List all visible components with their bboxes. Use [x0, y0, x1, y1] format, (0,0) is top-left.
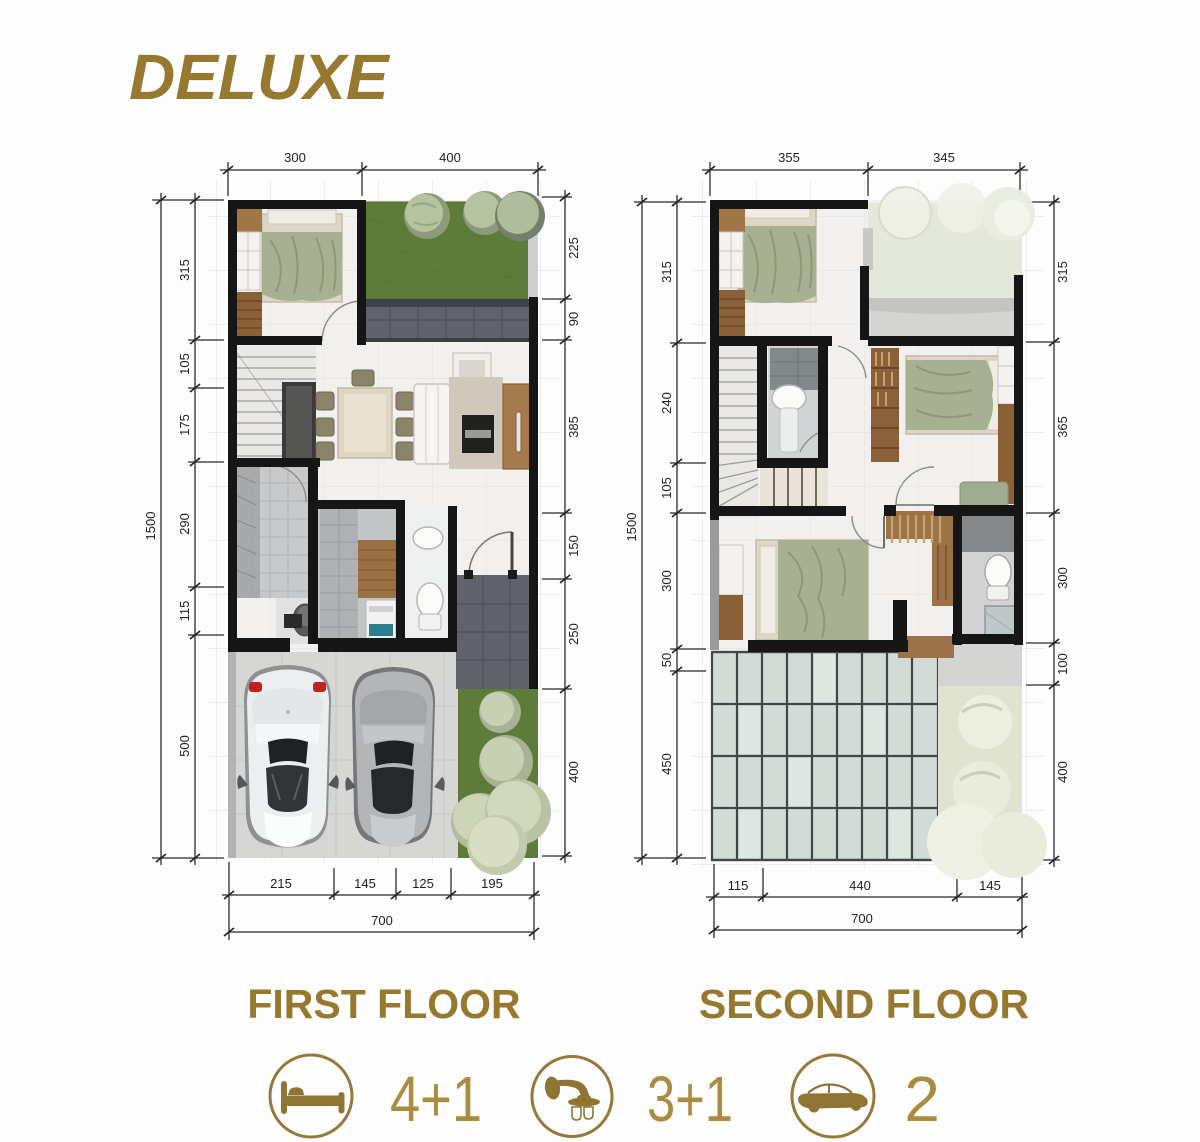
- svg-text:1500: 1500: [624, 513, 639, 542]
- svg-text:50: 50: [659, 653, 674, 667]
- svg-text:175: 175: [177, 414, 192, 436]
- svg-text:300: 300: [284, 150, 306, 165]
- svg-text:300: 300: [659, 570, 674, 592]
- svg-text:DELUXE: DELUXE: [129, 41, 391, 113]
- svg-text:1500: 1500: [143, 512, 158, 541]
- svg-text:400: 400: [1055, 761, 1070, 783]
- svg-text:400: 400: [439, 150, 461, 165]
- svg-text:315: 315: [1055, 261, 1070, 283]
- svg-text:315: 315: [177, 259, 192, 281]
- svg-text:700: 700: [371, 913, 393, 928]
- svg-text:105: 105: [177, 353, 192, 375]
- svg-text:440: 440: [849, 878, 871, 893]
- svg-text:100: 100: [1055, 653, 1070, 675]
- svg-text:115: 115: [728, 878, 749, 893]
- svg-text:225: 225: [566, 237, 581, 259]
- svg-text:150: 150: [566, 535, 581, 557]
- svg-text:115: 115: [177, 601, 192, 622]
- svg-text:SECOND FLOOR: SECOND FLOOR: [699, 981, 1029, 1027]
- svg-text:2: 2: [904, 1063, 940, 1135]
- svg-text:FIRST FLOOR: FIRST FLOOR: [247, 981, 520, 1027]
- svg-text:345: 345: [933, 150, 955, 165]
- svg-text:400: 400: [566, 761, 581, 783]
- svg-text:385: 385: [566, 416, 581, 438]
- svg-text:450: 450: [659, 753, 674, 775]
- svg-text:250: 250: [566, 623, 581, 645]
- svg-text:215: 215: [270, 876, 292, 891]
- svg-text:365: 365: [1055, 416, 1070, 438]
- svg-text:4+1: 4+1: [390, 1063, 482, 1135]
- svg-text:300: 300: [1055, 567, 1070, 589]
- svg-text:240: 240: [659, 392, 674, 414]
- svg-text:315: 315: [659, 261, 674, 283]
- svg-text:145: 145: [354, 876, 376, 891]
- svg-text:105: 105: [659, 477, 674, 499]
- svg-text:145: 145: [979, 878, 1001, 893]
- svg-text:3+1: 3+1: [647, 1063, 733, 1135]
- svg-text:355: 355: [778, 150, 800, 165]
- svg-text:125: 125: [412, 876, 434, 891]
- svg-text:290: 290: [177, 513, 192, 535]
- svg-text:700: 700: [851, 911, 873, 926]
- svg-text:195: 195: [481, 876, 503, 891]
- svg-text:500: 500: [177, 735, 192, 757]
- svg-text:90: 90: [566, 312, 581, 326]
